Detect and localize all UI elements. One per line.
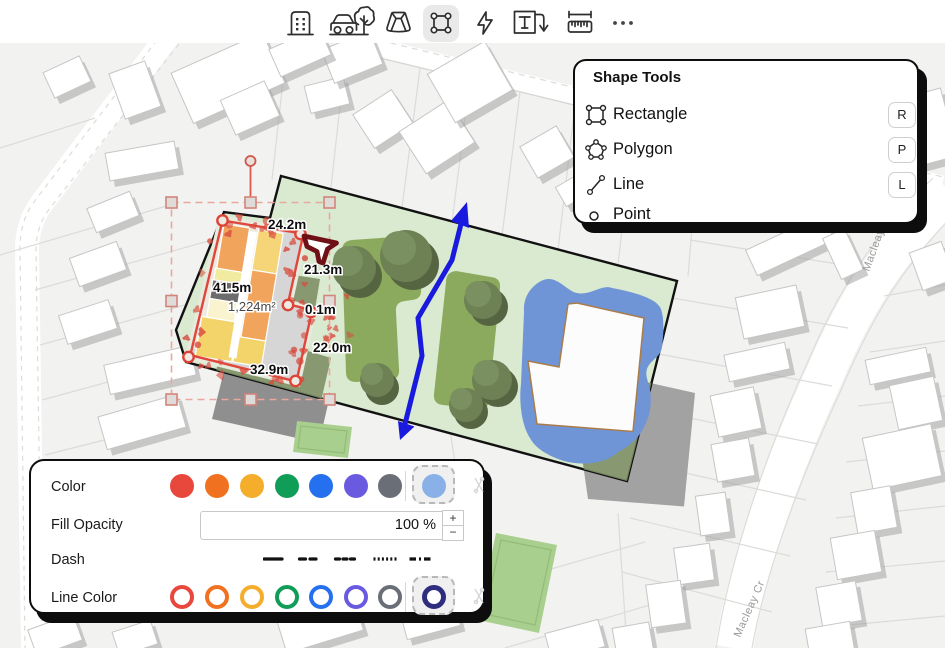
svg-text:24.2m: 24.2m — [268, 217, 306, 232]
svg-text:41.5m: 41.5m — [213, 280, 251, 295]
svg-text:0.1m: 0.1m — [305, 302, 336, 317]
svg-text:22.0m: 22.0m — [313, 340, 351, 355]
svg-text:1,224m²: 1,224m² — [228, 299, 276, 314]
svg-text:32.9m: 32.9m — [250, 362, 288, 377]
